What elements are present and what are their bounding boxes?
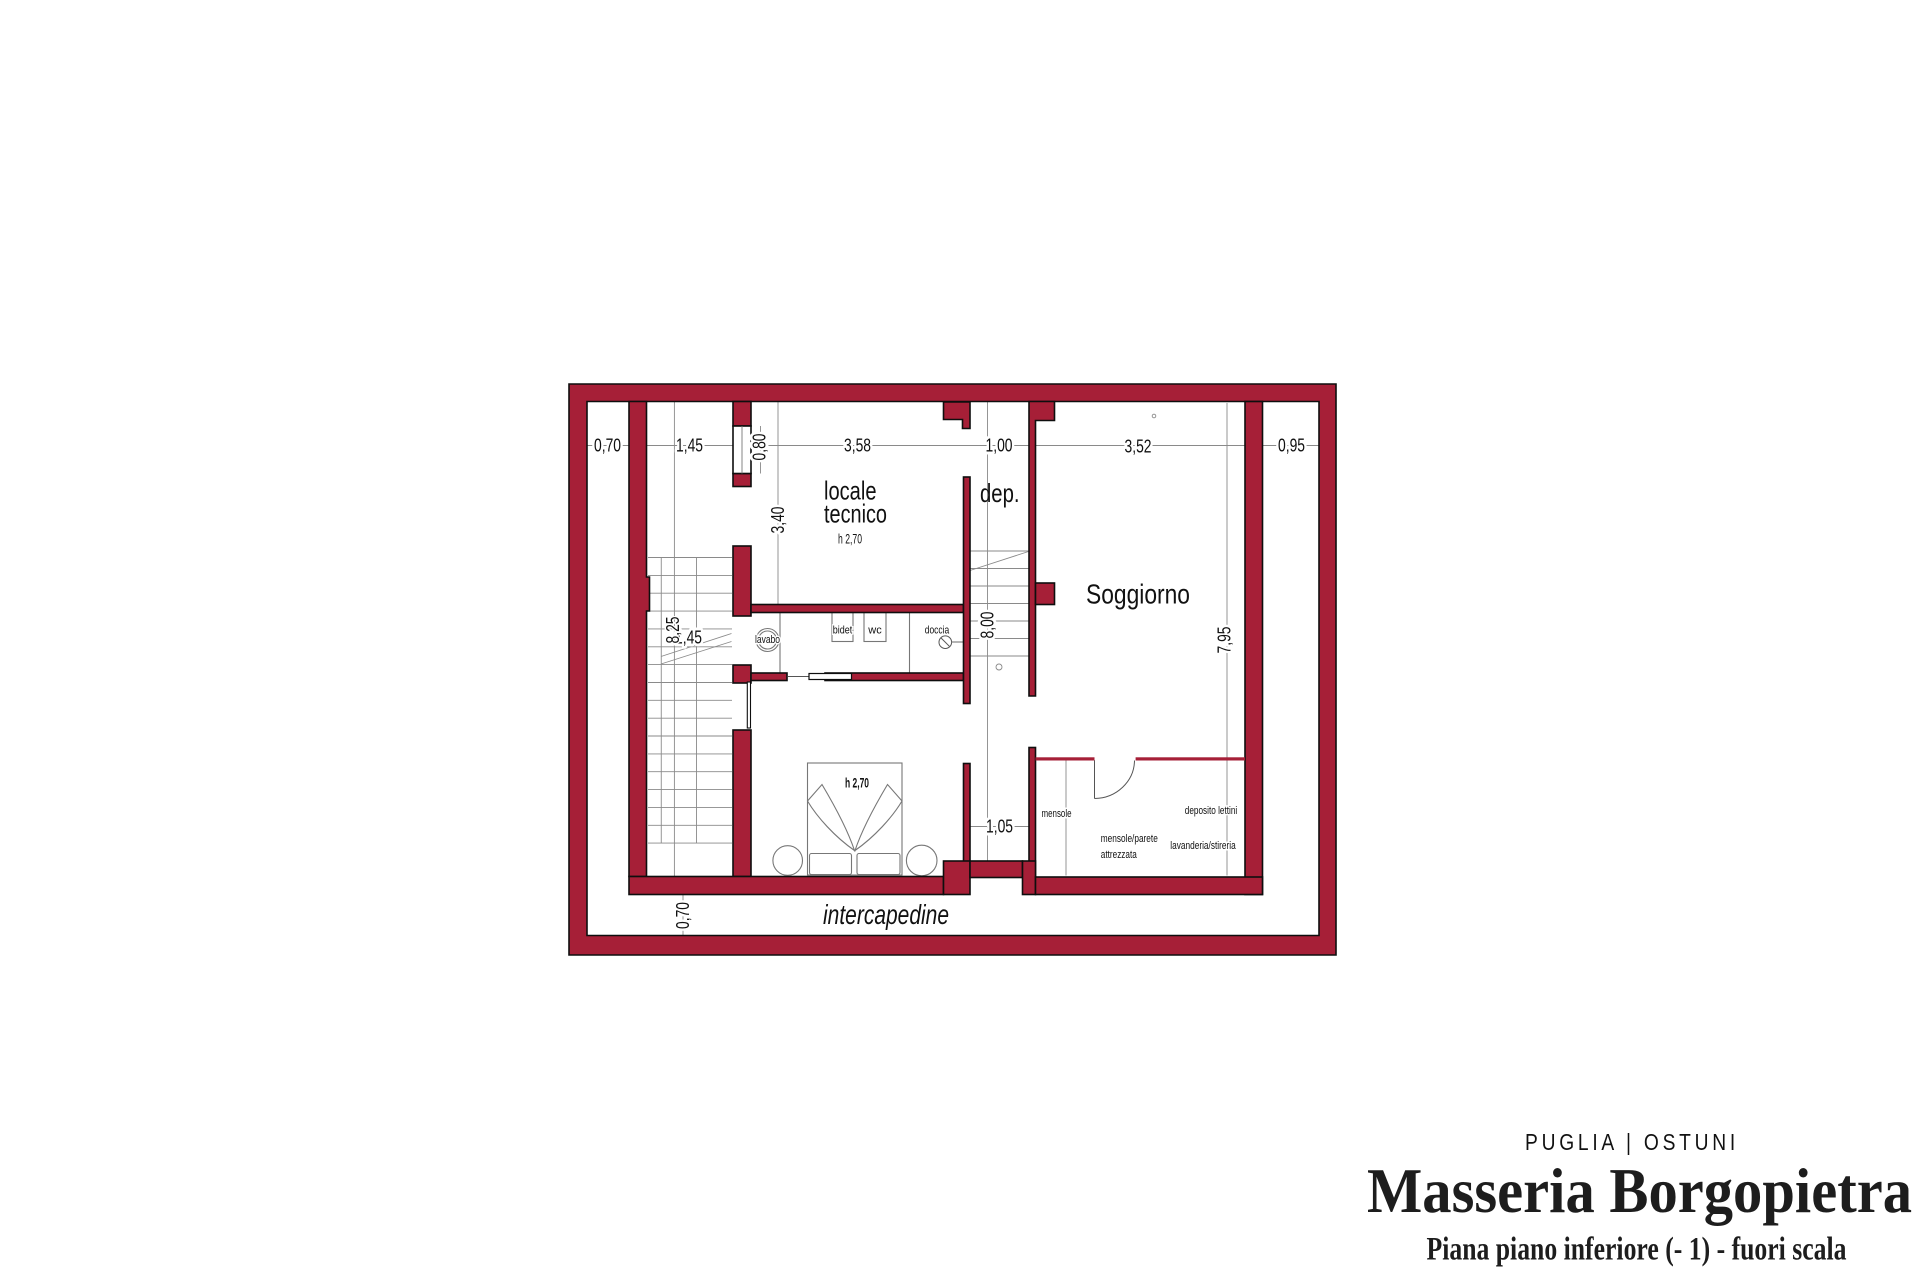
svg-text:wc: wc xyxy=(867,625,882,637)
svg-text:lavabo: lavabo xyxy=(755,634,780,646)
svg-text:PUGLIA | OSTUNI: PUGLIA | OSTUNI xyxy=(1525,1129,1739,1155)
svg-text:3,40: 3,40 xyxy=(768,507,788,534)
svg-text:h 2,70: h 2,70 xyxy=(838,531,862,547)
svg-text:0,95: 0,95 xyxy=(1278,436,1305,456)
svg-text:bidet: bidet xyxy=(833,625,853,637)
svg-text:tecnico: tecnico xyxy=(824,499,887,529)
svg-text:mensole: mensole xyxy=(1042,808,1072,820)
svg-text:0,70: 0,70 xyxy=(673,902,693,929)
svg-text:1,00: 1,00 xyxy=(986,436,1013,456)
svg-text:dep.: dep. xyxy=(980,478,1020,508)
svg-text:3,58: 3,58 xyxy=(844,436,871,456)
svg-text:lavanderia/stireria: lavanderia/stireria xyxy=(1170,840,1236,852)
svg-text:Masseria Borgopietra: Masseria Borgopietra xyxy=(1367,1156,1912,1226)
svg-text:8,00: 8,00 xyxy=(978,612,998,639)
svg-text:3,52: 3,52 xyxy=(1125,437,1152,457)
svg-text:Soggiorno: Soggiorno xyxy=(1086,579,1190,610)
svg-text:attrezzata: attrezzata xyxy=(1101,849,1138,861)
svg-text:1,05: 1,05 xyxy=(986,817,1013,837)
svg-text:7,95: 7,95 xyxy=(1215,627,1235,654)
svg-text:Piana piano inferiore (- 1) -: Piana piano inferiore (- 1) - fuori scal… xyxy=(1427,1232,1847,1268)
svg-text:mensole/parete: mensole/parete xyxy=(1101,833,1158,845)
svg-text:intercapedine: intercapedine xyxy=(823,899,949,930)
svg-text:1,45: 1,45 xyxy=(676,436,703,456)
svg-text:h 2,70: h 2,70 xyxy=(845,776,869,791)
svg-text:doccia: doccia xyxy=(925,625,950,637)
svg-text:0,70: 0,70 xyxy=(594,436,621,456)
svg-text:deposito lettini: deposito lettini xyxy=(1185,805,1238,817)
svg-text:8,25: 8,25 xyxy=(663,617,683,644)
svg-text:0,80: 0,80 xyxy=(750,434,770,461)
